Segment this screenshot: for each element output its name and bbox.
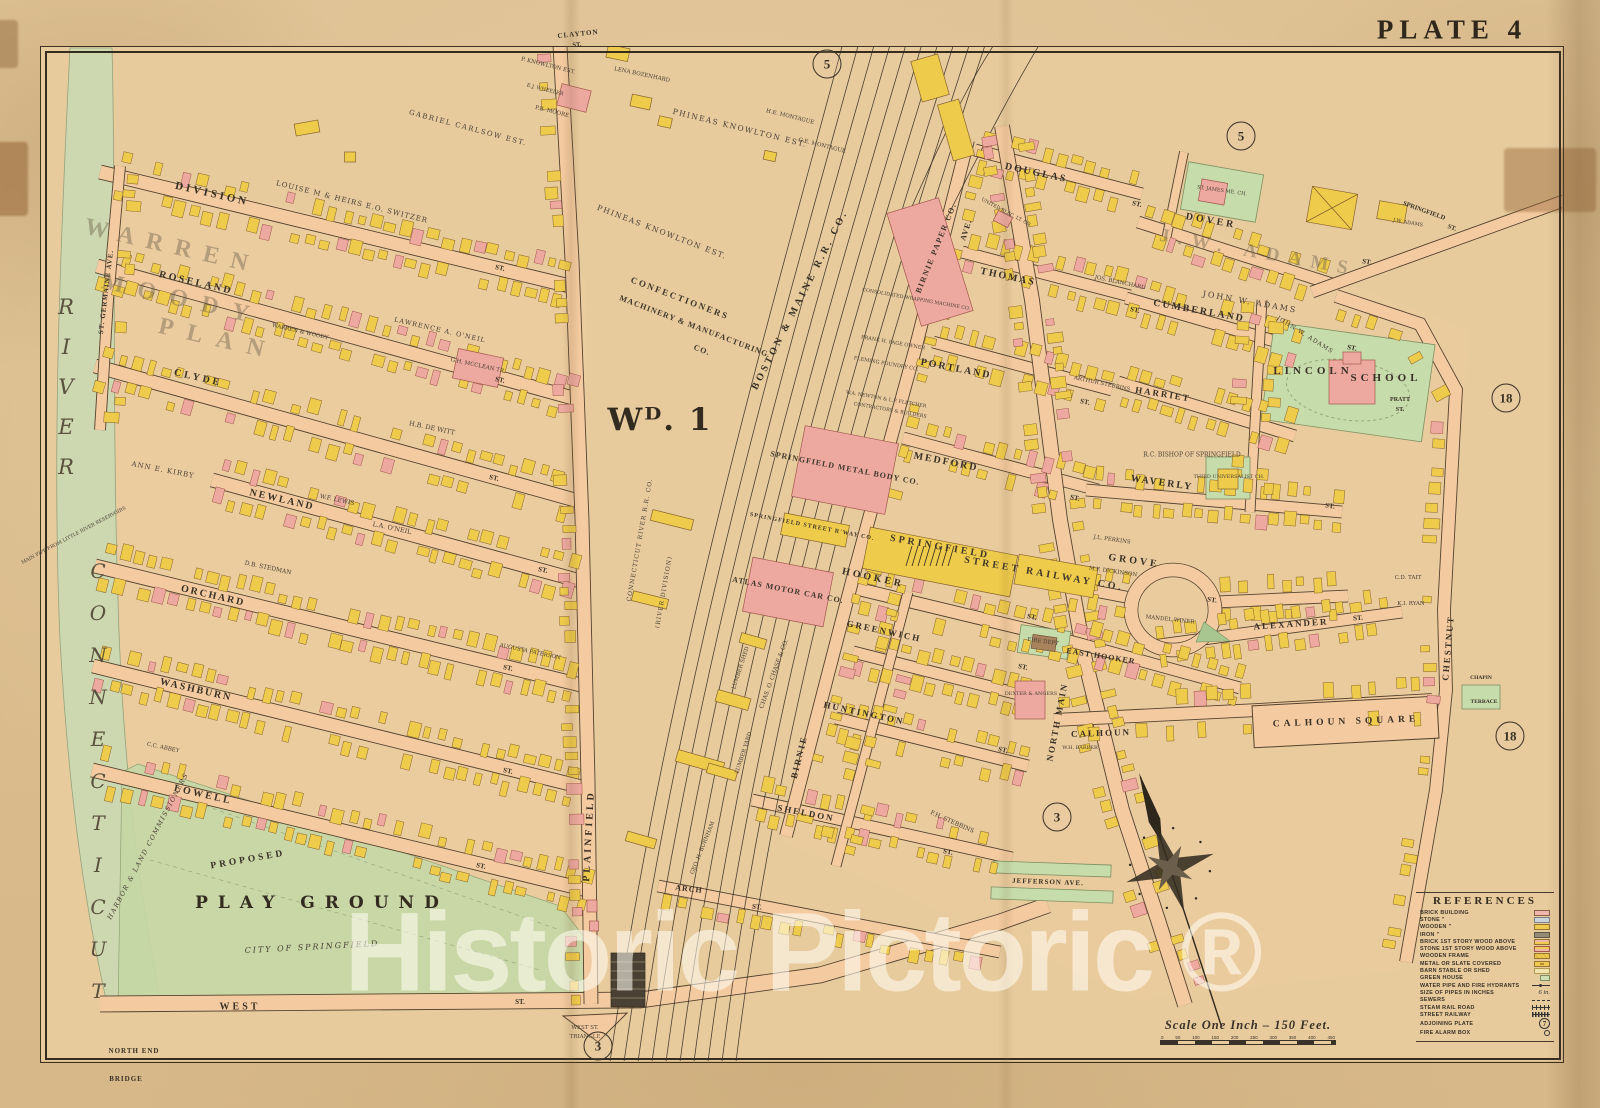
map-label: Wᴰ. 1 (608, 402, 713, 438)
street-label: ST. (1026, 612, 1037, 622)
legend-row: SIZE OF PIPES IN INCHES6 in. (1420, 989, 1550, 996)
map-label: R.C. BISHOP OF SPRINGFIELD (1143, 452, 1240, 459)
map-label: CONNECTICUT (86, 559, 110, 1021)
scale-tick: 300 (1269, 1035, 1277, 1040)
street-label: ST. (1079, 397, 1090, 407)
street-label: ST. (1129, 305, 1140, 315)
street-label: ST. (1396, 407, 1404, 413)
legend-label: STEAM RAIL ROAD (1420, 1005, 1475, 1011)
map-label: WEST ST. (571, 1025, 598, 1031)
legend-swatch-plate-icon: 7 (1539, 1018, 1550, 1029)
street-label: ST. (1069, 493, 1080, 503)
legend-row: BRICK 1ST STORY WOOD ABOVE (1420, 938, 1550, 945)
map-label: PLAY GROUND (195, 893, 449, 913)
scale-bar (1160, 1040, 1336, 1045)
map-label: K.I. RYAN (1397, 601, 1425, 607)
legend-row: METAL OR SLATE COVERED (1420, 960, 1550, 967)
legend-swatch-brickwood-icon (1534, 939, 1550, 945)
map-canvas (0, 0, 1600, 1108)
legend-row: WOODEN ” (1420, 924, 1550, 931)
legend-swatch-stone-icon (1534, 917, 1550, 923)
legend-row: SEWERS (1420, 997, 1550, 1004)
street-label: TERRACE (1471, 699, 1498, 705)
street-label: ST. (1325, 501, 1336, 510)
legend-row: STEAM RAIL ROAD (1420, 1004, 1550, 1011)
legend-label: BRICK 1ST STORY WOOD ABOVE (1420, 939, 1515, 945)
map-label: W.H. BARBER (1062, 745, 1098, 751)
legend-swatch-metal-icon (1534, 961, 1550, 967)
street-label: ST. (752, 903, 763, 912)
scale-tick: 100 (1192, 1035, 1200, 1040)
legend-swatch-sewer-icon (1532, 1000, 1550, 1001)
legend-label: WATER PIPE AND FIRE HYDRANTS (1420, 983, 1519, 989)
legend-label: WOODEN FRAME (1420, 953, 1469, 959)
legend-label: BRICK BUILDING (1420, 910, 1469, 916)
legend-row: STONE 1ST STORY WOOD ABOVE (1420, 945, 1550, 952)
legend-row: IRON ” (1420, 931, 1550, 938)
scale-tick: 450 (1327, 1035, 1335, 1040)
legend-swatch-srail-icon (1532, 1012, 1550, 1017)
legend-label: STONE ” (1420, 917, 1445, 923)
street-label: ST. (515, 998, 525, 1006)
scale-tick: 0 (1161, 1035, 1164, 1040)
legend-row: BARN STABLE OR SHED (1420, 967, 1550, 974)
street-label: CALHOUN (1071, 727, 1131, 739)
street-label: LINCOLN (1273, 365, 1352, 377)
scale-tick: 350 (1289, 1035, 1297, 1040)
street-label: ST. (502, 663, 513, 673)
street-label: ST. (502, 766, 513, 776)
map-label: RIVER (54, 295, 78, 495)
legend-row: FIRE ALARM BOX (1420, 1029, 1550, 1036)
legend-label: BARN STABLE OR SHED (1420, 968, 1490, 974)
street-label: ST. (537, 565, 548, 575)
street-label: ST. (475, 861, 486, 871)
scale-tick: 400 (1308, 1035, 1316, 1040)
legend-swatch-iron-icon (1534, 932, 1550, 938)
street-label: WEST (220, 1002, 261, 1013)
legend-label: SEWERS (1420, 997, 1445, 1003)
scale-tick: 50 (1175, 1035, 1180, 1040)
scale-text: Scale One Inch – 150 Feet. (1160, 1018, 1336, 1033)
adjoining-plate-circle: 3 (1043, 803, 1072, 832)
street-label: ST. (1353, 614, 1363, 623)
scale-tick: 150 (1211, 1035, 1219, 1040)
scale-bar-group: Scale One Inch – 150 Feet. 0501001502002… (1160, 1018, 1336, 1045)
street-label: ST. (572, 41, 582, 49)
legend-label: STREET RAILWAY (1420, 1012, 1471, 1018)
map-label: DEXTER & ANGERS (1005, 691, 1057, 697)
legend-label: ADJOINING PLATE (1420, 1021, 1473, 1027)
adjoining-plate-circle: 18 (1492, 384, 1521, 413)
legend-row: ADJOINING PLATE7 (1420, 1018, 1550, 1029)
legend-label: IRON ” (1420, 932, 1439, 938)
legend-label: GREEN HOUSE (1420, 975, 1463, 981)
street-label: SCHOOL (1350, 372, 1421, 384)
legend-row: STONE ” (1420, 916, 1550, 923)
scale-tick: 200 (1231, 1035, 1239, 1040)
legend-row: BRICK BUILDING (1420, 909, 1550, 916)
scale-tick: 250 (1250, 1035, 1258, 1040)
legend-swatch-text-icon: 6 in. (1538, 989, 1550, 996)
street-label: BRIDGE (109, 1075, 143, 1083)
references-legend: REFERENCES BRICK BUILDINGSTONE ”WOODEN ”… (1416, 892, 1554, 1042)
legend-label: SIZE OF PIPES IN INCHES (1420, 990, 1494, 996)
legend-swatch-greenhouse-icon (1540, 975, 1550, 981)
adjoining-plate-circle: 5 (1227, 122, 1256, 151)
street-label: ST. (997, 745, 1008, 755)
legend-swatch-barn-icon (1534, 968, 1550, 974)
map-label: C.D. TAIT (1395, 575, 1422, 581)
street-label: ST. (1346, 343, 1357, 353)
street-label: ST. (1017, 662, 1028, 672)
street-label: ST. (1131, 199, 1142, 209)
legend-swatch-frame-icon (1534, 953, 1550, 959)
adjoining-plate-circle: 5 (813, 50, 842, 79)
legend-label: WOODEN ” (1420, 924, 1451, 930)
street-label: PRATT (1390, 397, 1410, 403)
street-label: ST. (1361, 257, 1372, 267)
legend-row: GREEN HOUSE (1420, 975, 1550, 982)
legend-swatch-alarm-icon (1544, 1030, 1550, 1036)
street-label: CHAPIN (1470, 675, 1492, 681)
street-label: NORTH END (109, 1047, 160, 1055)
legend-row: WATER PIPE AND FIRE HYDRANTS (1420, 982, 1550, 989)
legend-swatch-water-icon (1532, 985, 1550, 986)
legend-title: REFERENCES (1420, 895, 1550, 907)
legend-swatch-stonewood-icon (1534, 946, 1550, 952)
legend-label: FIRE ALARM BOX (1420, 1030, 1470, 1036)
legend-swatch-brick-icon (1534, 910, 1550, 916)
legend-label: STONE 1ST STORY WOOD ABOVE (1420, 946, 1517, 952)
map-label: THIRD UNIVERSALIST CH. (1193, 474, 1264, 480)
street-label: ST. (1207, 595, 1218, 604)
adjoining-plate-circle: 18 (1496, 722, 1525, 751)
legend-row: WOODEN FRAME (1420, 953, 1550, 960)
legend-swatch-wood-icon (1534, 924, 1550, 930)
legend-rows: BRICK BUILDINGSTONE ”WOODEN ”IRON ”BRICK… (1420, 909, 1550, 1037)
street-label: ST. (942, 847, 953, 857)
atlas-map-sheet: PLATE 4 CLAYTONST.P. KNOWLTON EST.P.B. M… (0, 0, 1600, 1108)
legend-label: METAL OR SLATE COVERED (1420, 961, 1501, 967)
legend-row: STREET RAILWAY (1420, 1011, 1550, 1018)
adjoining-plate-circle: 3 (584, 1032, 613, 1061)
plate-title: PLATE 4 (1377, 15, 1527, 46)
legend-swatch-rail-icon (1532, 1005, 1550, 1010)
